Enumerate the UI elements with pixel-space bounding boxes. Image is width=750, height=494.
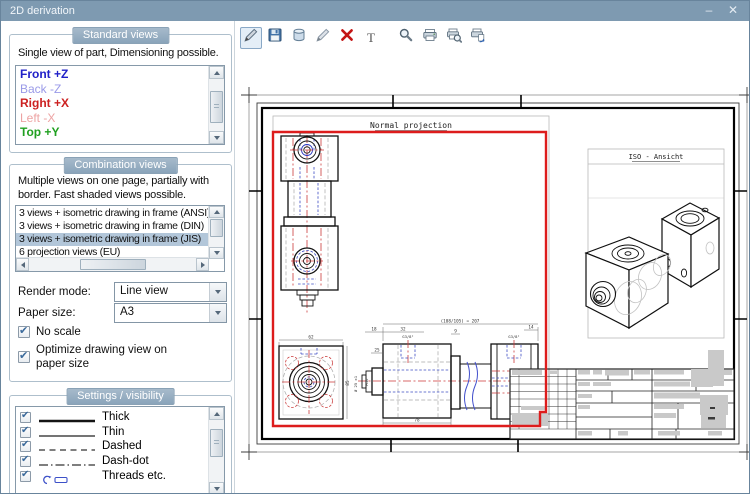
print-button[interactable] xyxy=(419,27,441,49)
settings-row-thick[interactable]: Thick xyxy=(16,411,208,425)
dim-18: 18 xyxy=(371,327,377,333)
scroll-thumb[interactable] xyxy=(210,91,223,123)
combination-hscrollbar[interactable] xyxy=(16,257,209,271)
titlebar[interactable]: 2D derivation – ✕ xyxy=(1,1,749,21)
dim-25: 25 xyxy=(374,348,380,354)
minimize-button[interactable]: – xyxy=(697,1,721,20)
close-button[interactable]: ✕ xyxy=(721,1,745,20)
print-export-button[interactable] xyxy=(467,27,489,49)
scroll-thumb[interactable] xyxy=(210,429,223,457)
scroll-down-icon[interactable] xyxy=(209,482,224,494)
settings-scrollbar[interactable] xyxy=(208,407,224,494)
text-button[interactable]: T xyxy=(360,27,382,49)
list-item-din[interactable]: 3 views + isometric drawing in frame (DI… xyxy=(16,220,209,233)
delete-button[interactable] xyxy=(336,27,358,49)
dim-m16: M16 xyxy=(364,378,369,386)
dim-32: 32 xyxy=(400,327,406,333)
group-standard-views: Standard views Single view of part, Dime… xyxy=(9,34,232,153)
floppy-icon xyxy=(267,27,283,48)
chevron-down-icon[interactable] xyxy=(209,304,226,322)
zoom-button[interactable] xyxy=(395,27,417,49)
printer-icon xyxy=(422,27,438,48)
dim-g38-right: G3/8" xyxy=(508,334,519,339)
pen-icon xyxy=(315,27,331,48)
settings-row-thin[interactable]: Thin xyxy=(16,426,208,440)
group-header-standard-views: Standard views xyxy=(72,27,169,44)
threads-label: Threads etc. xyxy=(102,470,166,482)
red-x-icon xyxy=(339,27,355,48)
edit-pen-button[interactable] xyxy=(312,27,334,49)
iso-view-label: ISO - Ansicht xyxy=(629,153,684,161)
database-icon xyxy=(291,27,307,48)
list-item-right[interactable]: Right +X xyxy=(16,96,209,111)
threads-checkbox[interactable] xyxy=(20,471,31,482)
settings-row-dashed[interactable]: Dashed xyxy=(16,440,208,454)
dim-9: 9 xyxy=(454,329,457,335)
chevron-down-icon[interactable] xyxy=(209,283,226,301)
dim-g38-left: G3/8" xyxy=(402,334,413,339)
render-mode-select[interactable]: Line view xyxy=(114,282,227,302)
standard-views-list: Front +Z Back -Z Right +X Left -X Top +Y xyxy=(15,65,225,145)
no-scale-checkbox[interactable] xyxy=(18,326,30,338)
list-item-left[interactable]: Left -X xyxy=(16,111,209,126)
text-icon: T xyxy=(367,30,375,46)
scroll-left-icon[interactable] xyxy=(16,258,29,271)
optimize-label-line2: paper size xyxy=(36,358,89,370)
printer-export-icon xyxy=(470,27,486,48)
settings-list: Thick Thin Dashed Dash-dot Threads etc. xyxy=(15,406,225,494)
scroll-down-icon[interactable] xyxy=(209,247,224,259)
list-item-top[interactable]: Top +Y xyxy=(16,125,209,140)
dashed-checkbox[interactable] xyxy=(20,441,31,452)
render-mode-value: Line view xyxy=(120,285,168,297)
thin-checkbox[interactable] xyxy=(20,427,31,438)
scroll-thumb[interactable] xyxy=(80,259,146,270)
window-title: 2D derivation xyxy=(10,5,75,17)
dim-85: 85 xyxy=(345,380,351,386)
dialog-2d-derivation: 2D derivation – ✕ T xyxy=(0,0,750,494)
thick-label: Thick xyxy=(102,411,129,423)
printer-magnifier-icon xyxy=(446,27,462,48)
group-header-combination-views: Combination views xyxy=(63,157,177,174)
database-button[interactable] xyxy=(288,27,310,49)
combination-vscrollbar[interactable] xyxy=(208,206,224,259)
dim-14: 14 xyxy=(528,325,534,331)
dim-62: 62 xyxy=(308,335,314,341)
dim-dia25: Ø 25 ±1 xyxy=(353,375,358,392)
optimize-label-line1: Optimize drawing view on xyxy=(36,344,167,356)
combination-description-line2: border. Fast shaded views possible. xyxy=(18,189,186,201)
group-header-settings: Settings / visibility xyxy=(66,388,175,405)
optimize-checkbox[interactable] xyxy=(18,351,30,363)
dim-78: 78 xyxy=(414,418,420,424)
thin-label: Thin xyxy=(102,426,124,438)
dashed-label: Dashed xyxy=(102,440,142,452)
paper-size-value: A3 xyxy=(120,306,134,318)
toolbar: T xyxy=(240,26,489,49)
no-scale-label: No scale xyxy=(36,326,81,338)
paper-size-label: Paper size: xyxy=(18,307,76,319)
normal-projection-label: Normal projection xyxy=(370,121,452,130)
list-item-ansi[interactable]: 3 views + isometric drawing in frame (AN… xyxy=(16,207,209,220)
paper-size-select[interactable]: A3 xyxy=(114,303,227,323)
dashdot-checkbox[interactable] xyxy=(20,456,31,467)
scroll-up-icon[interactable] xyxy=(209,407,224,420)
settings-row-dashdot[interactable]: Dash-dot xyxy=(16,455,208,469)
group-settings-visibility: Settings / visibility Thick Thin Dashed … xyxy=(9,395,232,494)
pen-icon xyxy=(243,27,259,48)
threads-icon xyxy=(38,472,96,490)
standard-views-scrollbar[interactable] xyxy=(208,66,224,144)
scroll-up-icon[interactable] xyxy=(209,66,224,79)
standard-views-description: Single view of part, Dimensioning possib… xyxy=(18,47,219,59)
print-preview-button[interactable] xyxy=(443,27,465,49)
drawing-preview: Normal projection xyxy=(235,51,749,493)
dim-overall: (108/105) = 207 xyxy=(441,319,480,325)
combination-views-list: 3 views + isometric drawing in frame (AN… xyxy=(15,205,225,272)
dashdot-label: Dash-dot xyxy=(102,455,149,467)
list-item-front[interactable]: Front +Z xyxy=(16,67,209,82)
render-mode-label: Render mode: xyxy=(18,286,91,298)
save-button[interactable] xyxy=(264,27,286,49)
scroll-down-icon[interactable] xyxy=(209,131,224,144)
combination-description-line1: Multiple views on one page, partially wi… xyxy=(18,175,209,187)
drawing-canvas[interactable]: Normal projection xyxy=(238,51,750,494)
group-combination-views: Combination views Multiple views on one … xyxy=(9,164,232,382)
magnifier-icon xyxy=(398,27,414,48)
edit-pen-active-button[interactable] xyxy=(240,27,262,49)
list-item-back[interactable]: Back -Z xyxy=(16,82,209,97)
scroll-up-icon[interactable] xyxy=(209,206,224,218)
scroll-right-icon[interactable] xyxy=(196,258,209,271)
settings-row-threads[interactable]: Threads etc. xyxy=(16,470,208,484)
thick-checkbox[interactable] xyxy=(20,412,31,423)
scroll-thumb[interactable] xyxy=(210,219,223,237)
list-item-jis-selected[interactable]: 3 views + isometric drawing in frame (JI… xyxy=(16,233,209,246)
